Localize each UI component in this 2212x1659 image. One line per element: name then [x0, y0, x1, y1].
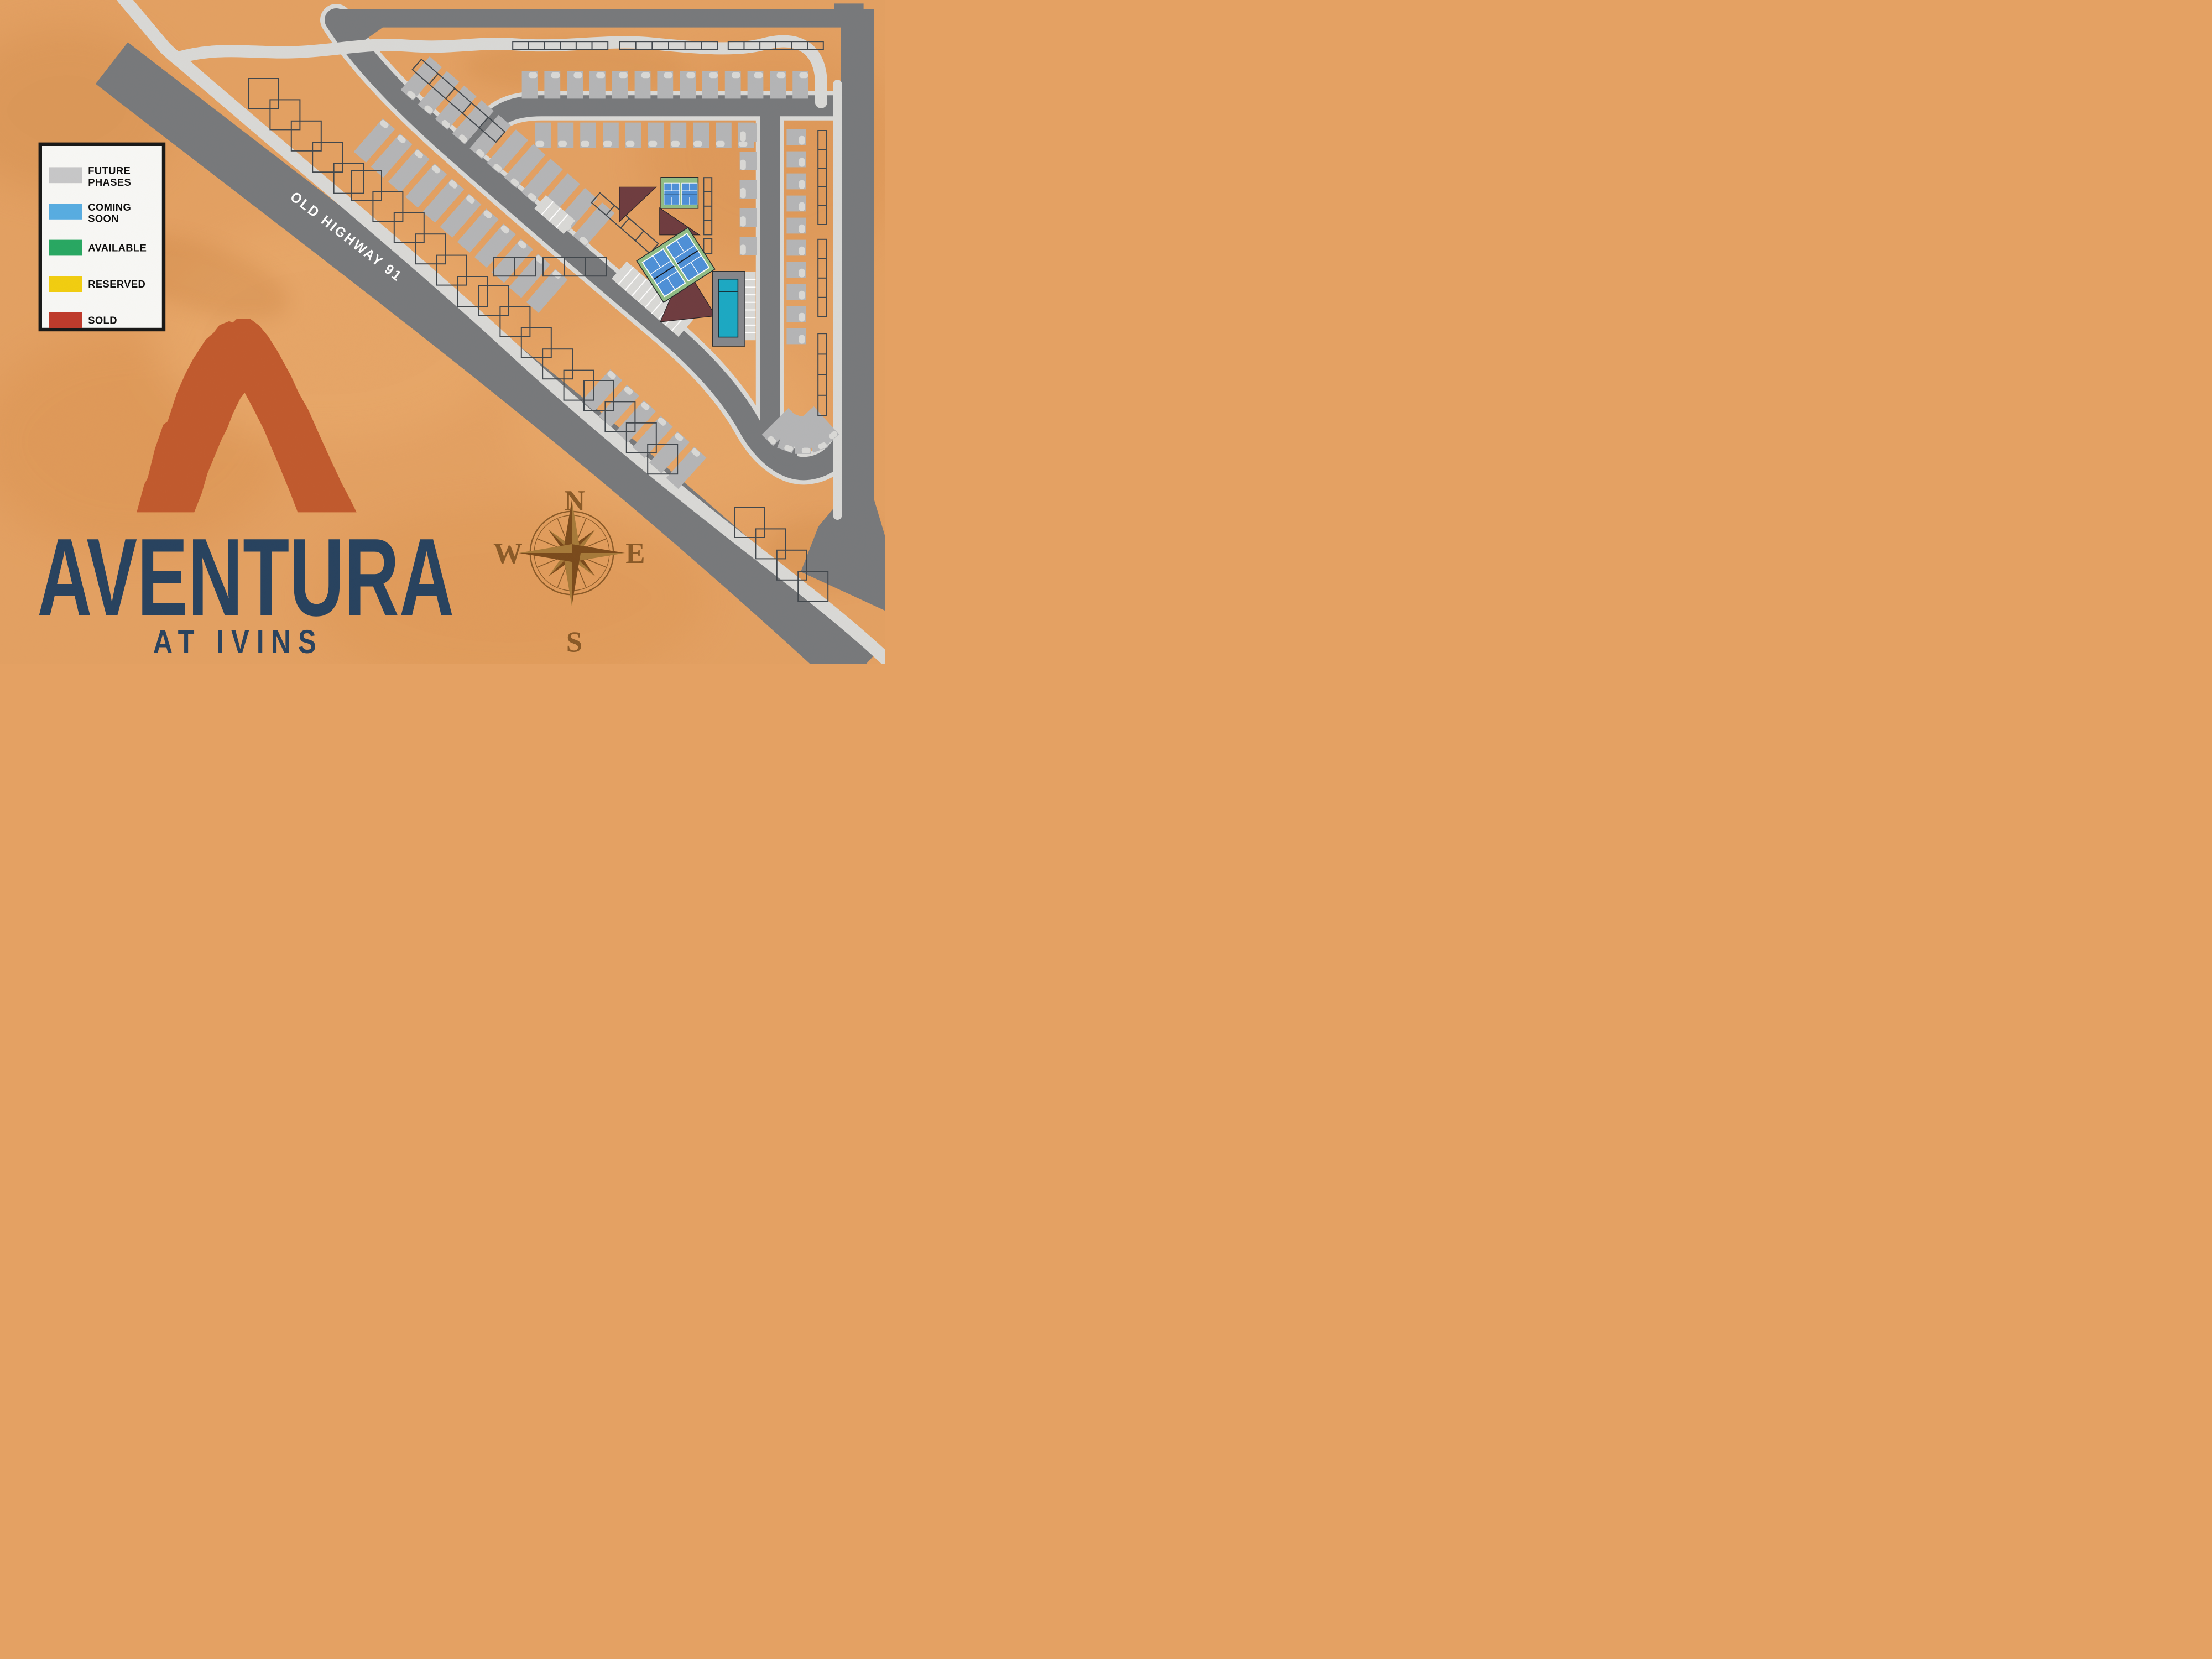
future-phase-lot [740, 180, 757, 199]
driveway-cap [799, 72, 808, 78]
future-phase-lot [786, 262, 806, 278]
driveway-cap [535, 141, 544, 147]
driveway-cap [716, 141, 725, 147]
driveway-cap [686, 72, 695, 78]
future-phase-lot [635, 71, 651, 98]
driveway-cap [603, 141, 612, 147]
driveway-cap [799, 180, 805, 189]
future-phase-lot [657, 71, 673, 98]
driveway-cap [799, 269, 805, 278]
legend-label-coming-soon-line2: SOON [88, 213, 119, 225]
legend-swatch-sold [49, 312, 82, 328]
driveway-cap [693, 141, 702, 147]
driveway-cap [799, 225, 805, 233]
driveway-cap [799, 335, 805, 344]
future-phase-lot [567, 71, 583, 98]
future-phase-lot [740, 208, 757, 227]
driveway-cap [777, 72, 786, 78]
future-phase-lot [725, 71, 741, 98]
future-phase-lot [544, 71, 560, 98]
site-map: N S W E OLD HIGHWAY 91 AVENTURA AT IVINS… [0, 0, 885, 664]
compass-south-label: S [566, 626, 582, 658]
future-phase-lot [786, 306, 806, 322]
driveway-cap [799, 291, 805, 300]
future-phase-lot [740, 237, 757, 255]
compass-west-label: W [493, 538, 523, 570]
compass-east-label: E [625, 538, 645, 570]
legend-label-sold: SOLD [88, 315, 117, 326]
legend-label-future-phases-line2: PHASES [88, 176, 131, 188]
future-phase-lot [786, 152, 806, 168]
future-phase-lot [702, 71, 718, 98]
legend-label-coming-soon-line1: COMING [88, 201, 131, 213]
driveway-cap [626, 141, 635, 147]
future-phase-lot [786, 240, 806, 256]
driveway-cap [740, 188, 745, 198]
future-phase-lot [786, 129, 806, 145]
driveway-cap [596, 72, 605, 78]
future-phase-lot [786, 328, 806, 345]
driveway-cap [641, 72, 650, 78]
driveway-cap [619, 72, 628, 78]
driveway-cap [709, 72, 718, 78]
future-phase-lot [670, 123, 686, 148]
legend-swatch-future-phases [49, 167, 82, 183]
future-phase-lot [716, 123, 732, 148]
future-phase-lot [589, 71, 606, 98]
driveway-cap [799, 202, 805, 211]
future-phase-lot [535, 123, 551, 148]
driveway-cap [799, 158, 805, 167]
legend-label-available: AVAILABLE [88, 242, 147, 253]
driveway-cap [573, 72, 582, 78]
swimming-pool [713, 272, 745, 346]
driveway-cap [740, 244, 745, 254]
future-phase-lot [603, 123, 619, 148]
future-phase-lot [680, 71, 696, 98]
driveway-cap [581, 141, 589, 147]
logo-tagline-text: AT IVINS [153, 623, 324, 660]
future-phase-lot [740, 123, 757, 142]
pickleball-court-pad-north [661, 178, 698, 208]
legend-swatch-coming-soon [49, 204, 82, 220]
future-phase-lot [786, 174, 806, 190]
future-phase-lot [792, 71, 808, 98]
driveway-cap [671, 141, 680, 147]
future-phase-lot [612, 71, 628, 98]
driveway-cap [740, 160, 745, 170]
legend-label-reserved: RESERVED [88, 278, 145, 290]
driveway-cap [551, 72, 560, 78]
legend-swatch-reserved [49, 276, 82, 292]
driveway-cap [740, 132, 745, 142]
future-phase-lot [740, 152, 757, 170]
future-phase-lot [557, 123, 573, 148]
legend-label-future-phases-line1: FUTURE [88, 165, 131, 176]
future-phase-lot [693, 123, 709, 148]
driveway-cap [648, 141, 657, 147]
future-phase-lot [786, 218, 806, 234]
legend: FUTURE PHASES COMING SOON AVAILABLE RESE… [40, 144, 164, 330]
future-phase-lot [770, 71, 786, 98]
driveway-cap [799, 136, 805, 145]
driveway-cap [740, 216, 745, 226]
driveway-cap [802, 448, 811, 453]
parking-stalls [745, 272, 755, 340]
future-phase-lot [580, 123, 596, 148]
driveway-cap [732, 72, 740, 78]
driveway-cap [799, 247, 805, 255]
future-phase-lot [522, 71, 538, 98]
driveway-cap [558, 141, 567, 147]
logo-name-text: AVENTURA [37, 516, 454, 639]
future-phase-lot [648, 123, 664, 148]
future-phase-lot [748, 71, 764, 98]
driveway-cap [754, 72, 763, 78]
future-phase-lot [786, 196, 806, 212]
future-phase-lot [625, 123, 641, 148]
future-phase-lot [786, 284, 806, 300]
compass-north-label: N [564, 485, 585, 517]
legend-swatch-available [49, 240, 82, 256]
driveway-cap [799, 313, 805, 322]
driveway-cap [529, 72, 538, 78]
driveway-cap [664, 72, 673, 78]
